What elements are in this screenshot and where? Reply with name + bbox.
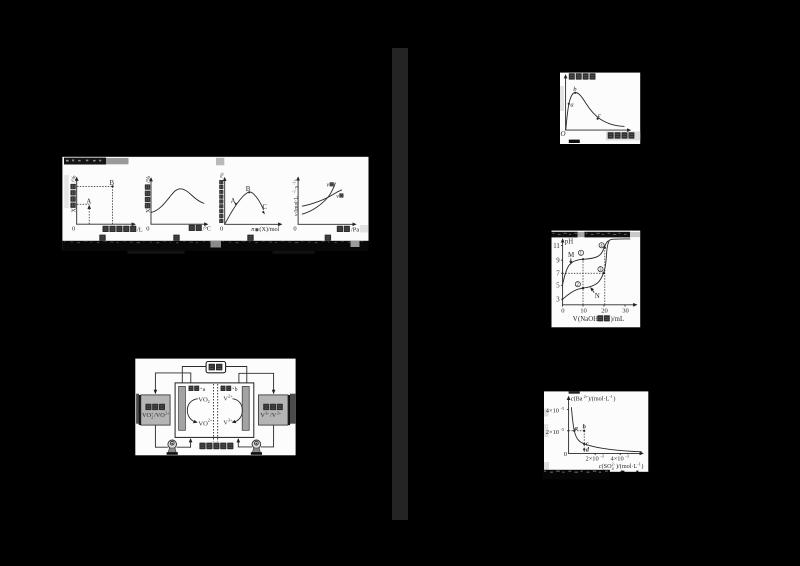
svg-text:-1: -1 [637, 462, 640, 467]
svg-text:(Ba: (Ba [574, 395, 583, 402]
svg-text:2: 2 [208, 399, 210, 404]
svg-text:-3: -3 [600, 454, 604, 459]
svg-text:N: N [595, 292, 600, 300]
svg-text:(X)/mol: (X)/mol [259, 226, 279, 233]
svg-text:/°C: /°C [203, 226, 211, 233]
svg-text:b: b [583, 424, 586, 431]
svg-text:VO: VO [142, 412, 152, 419]
svg-text:/(mol·L: /(mol·L [292, 196, 299, 213]
svg-text:O: O [561, 130, 566, 138]
svg-text:v: v [327, 183, 330, 189]
svg-text:9: 9 [556, 258, 560, 265]
svg-text:0: 0 [293, 226, 296, 233]
svg-text:0: 0 [220, 226, 223, 233]
svg-text:7: 7 [556, 271, 560, 278]
svg-text:2+: 2+ [208, 418, 213, 423]
svg-text:VO: VO [198, 420, 208, 427]
svg-text:20: 20 [601, 307, 608, 314]
svg-text:/%: /% [145, 176, 152, 183]
svg-text:10: 10 [580, 307, 587, 314]
svg-text:)/(mol·L: )/(mol·L [616, 463, 638, 470]
svg-text:X: X [71, 208, 78, 213]
svg-text:30: 30 [622, 307, 629, 314]
svg-text:)/mL: )/mL [611, 316, 625, 323]
svg-text:/%: /% [220, 172, 226, 178]
svg-text:2+: 2+ [228, 394, 233, 399]
svg-text:)/(mol·L: )/(mol·L [588, 395, 610, 402]
svg-text:3+: 3+ [228, 418, 233, 423]
svg-text:-5: -5 [561, 406, 565, 411]
svg-text:): ) [292, 179, 299, 181]
svg-text:3: 3 [556, 297, 560, 304]
svg-text:/L: /L [137, 227, 143, 234]
svg-text:·s: ·s [293, 186, 299, 190]
svg-text:/VO: /VO [154, 412, 165, 419]
svg-text:2: 2 [151, 415, 153, 419]
svg-text:3+: 3+ [265, 411, 269, 415]
svg-text:v: v [336, 194, 339, 200]
svg-text:5: 5 [556, 283, 560, 290]
svg-text:(SO: (SO [602, 463, 613, 470]
svg-text:2×10: 2×10 [586, 455, 599, 462]
svg-text:-5: -5 [561, 427, 565, 432]
svg-text:4: 4 [612, 466, 614, 471]
svg-text:(NaOH: (NaOH [578, 316, 598, 323]
svg-text:): ) [613, 395, 615, 402]
svg-text:-1: -1 [609, 394, 612, 399]
svg-text:M: M [568, 251, 575, 259]
svg-text:2+: 2+ [165, 411, 169, 415]
svg-text:B: B [246, 186, 251, 193]
svg-text:0: 0 [72, 226, 75, 233]
svg-text:/Pa: /Pa [351, 226, 359, 233]
svg-text:A: A [231, 198, 236, 205]
svg-text:-3: -3 [625, 454, 629, 459]
svg-text:A: A [86, 198, 91, 205]
svg-text:0: 0 [146, 226, 149, 233]
svg-text:B: B [110, 180, 115, 187]
svg-text:C: C [263, 204, 268, 211]
svg-text:c: c [598, 112, 601, 119]
svg-text:b: b [235, 387, 238, 393]
svg-text:): ) [641, 463, 643, 470]
svg-text:2+: 2+ [277, 411, 281, 415]
svg-text:2×10: 2×10 [546, 429, 559, 436]
svg-text:VO: VO [198, 396, 208, 403]
svg-text:11: 11 [553, 243, 560, 250]
svg-text:pH: pH [565, 239, 573, 246]
svg-text:/V: /V [270, 412, 277, 419]
svg-text:/%: /% [71, 176, 78, 183]
svg-text:4×10: 4×10 [546, 408, 559, 415]
svg-text:a: a [203, 387, 206, 393]
